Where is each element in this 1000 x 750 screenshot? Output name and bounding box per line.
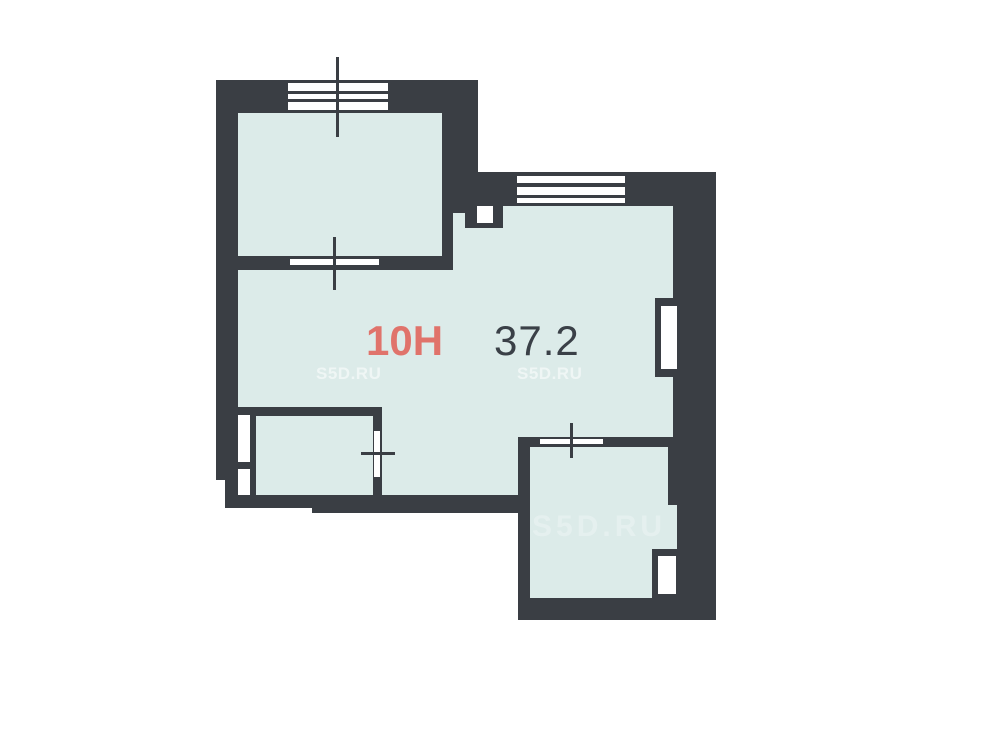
wall-segment-right-lower	[677, 437, 716, 620]
wall-segment-bottomright-bottom	[518, 598, 716, 620]
area-label: 37.2	[494, 320, 580, 362]
hatch-line	[517, 195, 625, 198]
main-room-floor-notch	[453, 213, 465, 270]
wall-segment-right-step	[668, 437, 677, 505]
watermark: S5D.RU	[316, 365, 381, 382]
window-hatch-main-room	[517, 176, 625, 203]
niche-opening-left-1	[238, 415, 250, 462]
hatch-line	[517, 183, 625, 187]
shaft-opening	[477, 206, 493, 223]
axis-line-topleft-bottom	[333, 237, 336, 290]
wall-segment-bottom-b	[312, 495, 518, 513]
room-bottom-right-floor-ext	[668, 505, 677, 549]
niche-opening-right-wall	[661, 306, 677, 369]
axis-line-top-window	[336, 57, 339, 137]
wall-segment-topleft-room-right	[442, 113, 453, 258]
watermark: S5D.RU	[532, 512, 666, 542]
floorplan: 10H 37.2 S5D.RU S5D.RU S5D.RU	[0, 0, 1000, 750]
room-top-left-floor	[238, 113, 442, 256]
axis-line-bottomright-window	[570, 423, 573, 458]
unit-number-label: 10H	[366, 320, 443, 362]
wall-segment-bottomright-left	[518, 437, 530, 598]
niche-opening-bottom-right	[658, 556, 676, 594]
wall-segment-left	[216, 80, 238, 480]
floorplan-canvas: 10H 37.2 S5D.RU S5D.RU S5D.RU	[0, 0, 1000, 750]
axis-line-smallroom-door	[361, 452, 395, 455]
niche-opening-left-2	[238, 469, 250, 495]
watermark: S5D.RU	[517, 365, 582, 382]
wall-segment-smallroom-top	[238, 407, 382, 416]
